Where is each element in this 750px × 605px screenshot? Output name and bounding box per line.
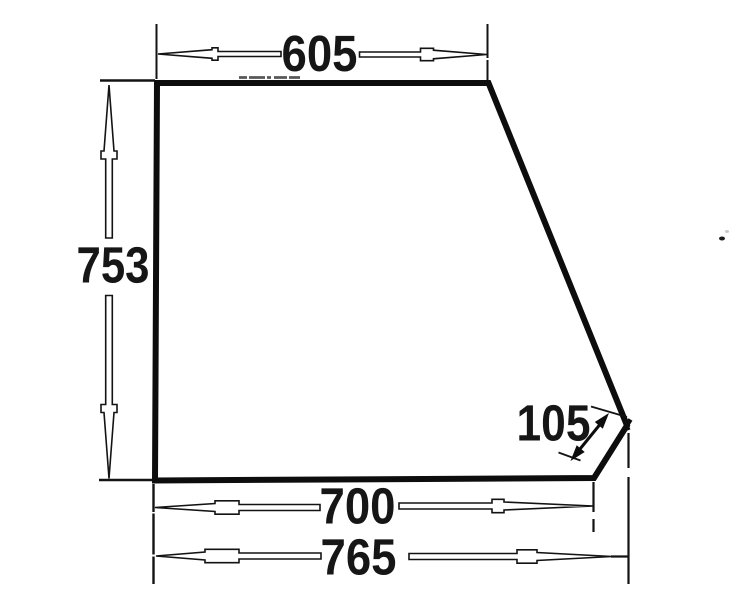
svg-text:765: 765: [321, 529, 397, 586]
svg-text:105: 105: [517, 394, 591, 451]
svg-text:605: 605: [282, 25, 358, 82]
svg-text:753: 753: [77, 236, 150, 293]
svg-text:700: 700: [320, 478, 396, 535]
